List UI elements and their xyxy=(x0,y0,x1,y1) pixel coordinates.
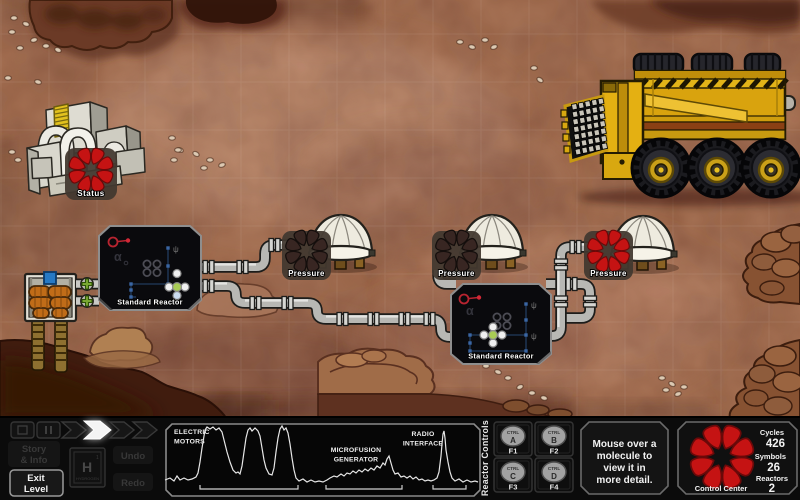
svg-text:Pressure: Pressure xyxy=(288,269,325,278)
svg-text:D: D xyxy=(551,472,557,481)
svg-text:Undo: Undo xyxy=(121,451,145,462)
svg-text:Pressure: Pressure xyxy=(590,269,627,278)
svg-text:Reactors: Reactors xyxy=(756,474,788,483)
svg-text:ψ: ψ xyxy=(531,332,537,341)
svg-text:Redo: Redo xyxy=(121,478,145,489)
svg-text:Reactor Controls: Reactor Controls xyxy=(480,420,490,496)
svg-text:& Info: & Info xyxy=(21,455,48,466)
svg-text:F3: F3 xyxy=(509,483,518,492)
svg-text:Exit: Exit xyxy=(27,473,45,484)
svg-text:INTERFACE: INTERFACE xyxy=(403,441,444,448)
svg-text:molecule to: molecule to xyxy=(597,451,653,462)
svg-text:more detail.: more detail. xyxy=(596,475,652,486)
svg-text:MOTORS: MOTORS xyxy=(174,439,205,446)
svg-text:α: α xyxy=(114,250,122,264)
svg-text:Standard Reactor: Standard Reactor xyxy=(468,352,534,361)
svg-text:F4: F4 xyxy=(550,483,560,492)
svg-text:C: C xyxy=(510,472,516,481)
svg-text:Control Center: Control Center xyxy=(695,484,748,493)
svg-text:Level: Level xyxy=(24,484,48,495)
svg-text:α: α xyxy=(466,304,474,318)
svg-text:ψ: ψ xyxy=(531,301,537,310)
svg-text:Standard Reactor: Standard Reactor xyxy=(117,298,183,307)
svg-text:Pressure: Pressure xyxy=(438,269,475,278)
svg-text:Story: Story xyxy=(22,444,47,455)
svg-text:view it in: view it in xyxy=(603,463,645,474)
svg-text:H: H xyxy=(82,459,92,475)
svg-text:26: 26 xyxy=(767,462,780,474)
svg-text:Symbols: Symbols xyxy=(755,452,786,461)
svg-text:MICROFUSION: MICROFUSION xyxy=(331,447,382,454)
svg-text:F2: F2 xyxy=(550,447,559,456)
svg-text:426: 426 xyxy=(766,438,785,450)
svg-text:1: 1 xyxy=(96,455,99,461)
svg-text:HYDROGEN: HYDROGEN xyxy=(76,476,99,481)
svg-text:Cycles: Cycles xyxy=(760,428,784,437)
svg-text:CTRL: CTRL xyxy=(507,466,519,471)
svg-text:CTRL: CTRL xyxy=(548,466,560,471)
svg-text:F1: F1 xyxy=(509,447,518,456)
svg-text:CTRL: CTRL xyxy=(548,430,560,435)
svg-text:GENERATOR: GENERATOR xyxy=(334,457,379,464)
svg-text:ψ: ψ xyxy=(173,245,179,254)
svg-text:RADIO: RADIO xyxy=(412,431,435,438)
svg-text:A: A xyxy=(510,436,516,445)
svg-text:2: 2 xyxy=(769,483,775,495)
svg-text:CTRL: CTRL xyxy=(507,430,519,435)
svg-text:Status: Status xyxy=(77,189,105,198)
svg-text:B: B xyxy=(551,436,557,445)
svg-text:Mouse over a: Mouse over a xyxy=(593,439,657,450)
